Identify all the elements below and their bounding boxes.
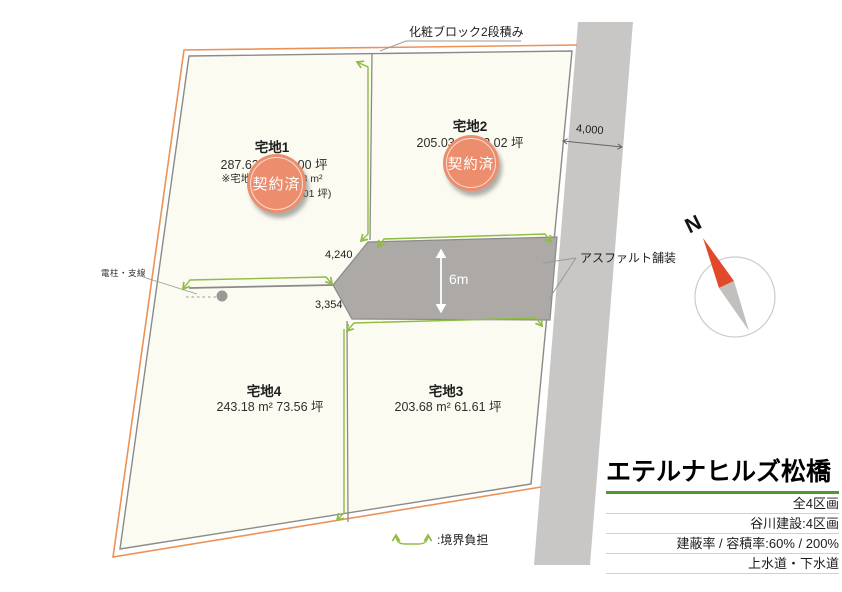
info-row-water: 上水道・下水道 bbox=[606, 554, 839, 574]
development-title: エテルナヒルズ松橋 bbox=[606, 452, 839, 494]
dimension-3354: 3,354 bbox=[315, 299, 343, 311]
plot2-sold-badge: 契約済 bbox=[443, 135, 499, 191]
site-plan-canvas: 化粧ブロック2段積み アスファルト舗装 電柱・支線 宅地1 287.63 m² … bbox=[0, 0, 842, 592]
plot1-sold-badge-text: 契約済 bbox=[252, 173, 300, 194]
legend: :境界負担 bbox=[392, 531, 488, 548]
utility-pole-label: 電柱・支線 bbox=[101, 267, 146, 279]
info-row-builder: 谷川建設:4区画 bbox=[606, 514, 839, 534]
plot3-area: 203.68 m² 61.61 坪 bbox=[394, 396, 501, 415]
info-row-coverage-ratio: 建蔽率 / 容積率:60% / 200% bbox=[606, 534, 839, 554]
utility-pole-dot bbox=[217, 291, 228, 302]
dimension-4240: 4,240 bbox=[325, 249, 353, 261]
dimension-4000: 4,000 bbox=[576, 123, 604, 137]
boundary-burden-symbol bbox=[392, 532, 432, 547]
compass-needle-north bbox=[703, 238, 734, 288]
info-panel: エテルナヒルズ松橋 全4区画 谷川建設:4区画 建蔽率 / 容積率:60% / … bbox=[606, 452, 839, 574]
info-row-total-lots: 全4区画 bbox=[606, 494, 839, 514]
plot2-sold-badge-text: 契約済 bbox=[448, 153, 495, 174]
asphalt-road-surface bbox=[333, 237, 557, 320]
plot1-name: 宅地1 bbox=[255, 136, 290, 156]
block-wall-label: 化粧ブロック2段積み bbox=[409, 23, 524, 40]
compass bbox=[695, 238, 775, 337]
road-width-6m: 6m bbox=[449, 271, 468, 287]
legend-label: :境界負担 bbox=[437, 531, 488, 548]
plot1-sold-badge: 契約済 bbox=[247, 154, 306, 213]
asphalt-label: アスファルト舗装 bbox=[580, 249, 676, 266]
plot4-area: 243.18 m² 73.56 坪 bbox=[216, 396, 323, 415]
compass-needle-south bbox=[719, 281, 749, 331]
